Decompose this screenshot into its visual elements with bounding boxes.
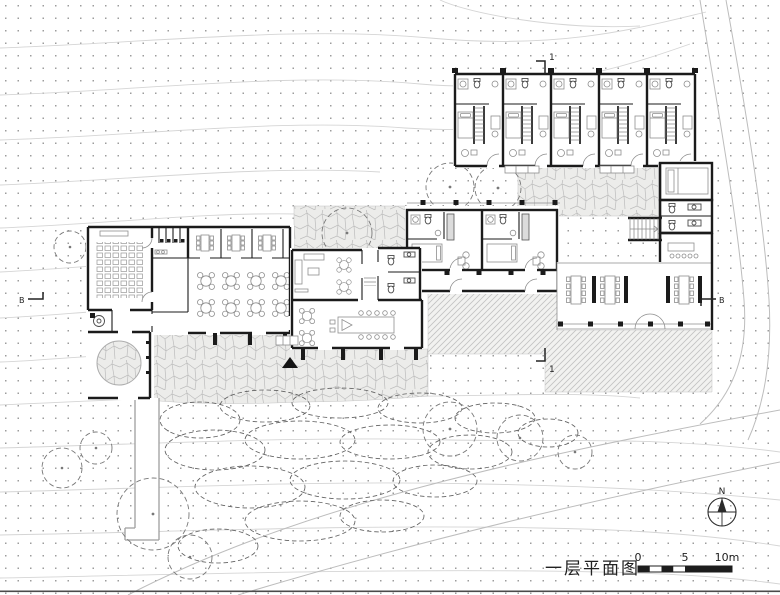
scale-label-5: 5 <box>682 551 689 564</box>
scale-label-0: 0 <box>635 551 642 564</box>
floor-plan-drawing: 1 1 B B N 一层平面图 0 5 10m <box>0 0 780 595</box>
dining-table <box>259 235 276 251</box>
north-label: N <box>719 487 726 497</box>
section-marker-label: 1 <box>549 53 555 63</box>
scale-label-10m: 10m <box>715 551 740 564</box>
section-marker-label: 1 <box>549 365 555 375</box>
dining-table <box>197 235 214 251</box>
dining-table <box>228 235 245 251</box>
circular-planter <box>97 341 141 385</box>
guestroom-building-north <box>452 68 698 173</box>
link-building <box>290 248 422 360</box>
sheet-border-line <box>0 591 780 593</box>
section-marker-label: B <box>19 296 25 305</box>
plan-caption: 一层平面图 <box>545 559 640 579</box>
lecture-seats <box>96 242 144 298</box>
plan-canvas: 1 1 B B N 一层平面图 0 5 10m <box>0 0 780 595</box>
section-marker-label: B <box>719 296 725 305</box>
guestroom-building-middle <box>405 200 560 294</box>
stair <box>628 218 662 240</box>
